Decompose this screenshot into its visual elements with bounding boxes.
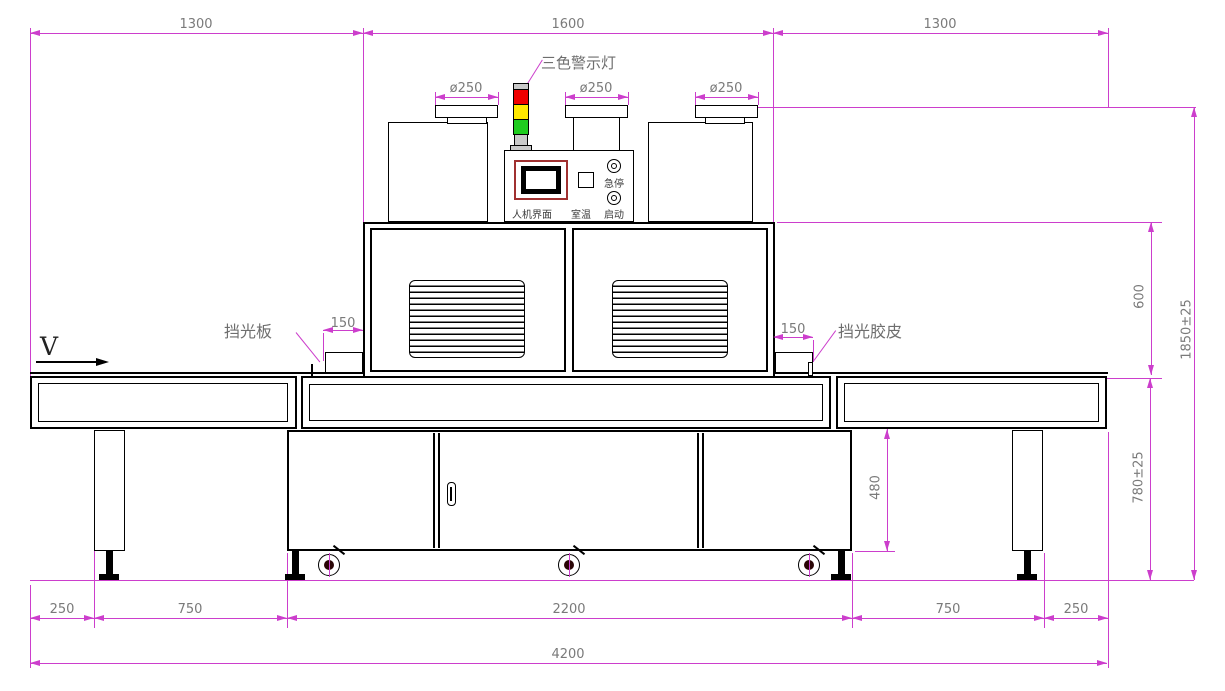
ref-line-top bbox=[758, 107, 1196, 108]
dim-arrowhead bbox=[763, 30, 773, 36]
dim-text-1300-right: 1300 bbox=[915, 17, 965, 32]
caster-centerline bbox=[569, 553, 570, 577]
dim-arrowhead bbox=[618, 94, 628, 100]
cabinet-divider bbox=[433, 433, 435, 548]
dim-text-1600: 1600 bbox=[543, 17, 593, 32]
dim-text-750-l: 750 bbox=[165, 602, 215, 617]
dim-arrowhead bbox=[565, 94, 575, 100]
foot-plate bbox=[1017, 574, 1037, 580]
dim-arrowhead bbox=[1098, 615, 1108, 621]
ext-line bbox=[30, 585, 31, 668]
dim-text-600: 600 bbox=[1133, 267, 1148, 327]
dim-text-duct-left: ø250 bbox=[441, 81, 491, 96]
dim-text-480: 480 bbox=[869, 458, 884, 518]
cabinet-door-handle-grip bbox=[450, 487, 452, 501]
light-block-rubber-strip bbox=[808, 362, 813, 376]
light-block-rubber-label: 挡光胶皮 bbox=[838, 318, 902, 342]
ext-line bbox=[363, 28, 364, 222]
dim-text-4200: 4200 bbox=[543, 647, 593, 662]
dim-text-250-l: 250 bbox=[37, 602, 87, 617]
foot-stem bbox=[106, 551, 113, 575]
warning-light-stem bbox=[514, 134, 528, 146]
dim-arrowhead bbox=[323, 327, 333, 333]
dim-arrowhead bbox=[363, 30, 373, 36]
ext-line bbox=[758, 92, 759, 105]
dim-arrowhead bbox=[30, 30, 40, 36]
ext-line bbox=[773, 28, 774, 222]
dim-arrowhead bbox=[1148, 222, 1154, 232]
hmi-screen[interactable] bbox=[521, 166, 561, 194]
leader-block-plate bbox=[296, 332, 321, 362]
dim-arrowhead bbox=[287, 615, 297, 621]
duct-neck-middle bbox=[573, 118, 620, 150]
dim-arrowhead bbox=[84, 615, 94, 621]
dim-arrowhead bbox=[1098, 30, 1108, 36]
dim-arrowhead bbox=[1148, 365, 1154, 375]
dim-arrowhead bbox=[435, 94, 445, 100]
leg-left bbox=[94, 430, 125, 551]
cabinet-divider bbox=[702, 433, 704, 548]
ext-line bbox=[498, 92, 499, 105]
fan-box-left bbox=[435, 105, 498, 118]
direction-mark: V bbox=[40, 332, 58, 361]
dim-line-4200 bbox=[30, 663, 1107, 664]
ext-line bbox=[323, 333, 324, 361]
dim-arrowhead bbox=[353, 327, 363, 333]
estop-label: 急停 bbox=[604, 175, 624, 190]
cabinet-divider bbox=[438, 433, 440, 548]
fan-box-middle bbox=[565, 105, 628, 118]
dim-line-top bbox=[30, 33, 1108, 34]
dim-arrowhead bbox=[1191, 570, 1197, 580]
dim-text-250-r: 250 bbox=[1051, 602, 1101, 617]
dim-arrowhead bbox=[852, 615, 862, 621]
table-middle-inner bbox=[309, 384, 823, 421]
foot-plate bbox=[285, 574, 305, 580]
dim-arrowhead bbox=[1147, 378, 1153, 388]
dim-arrowhead bbox=[1147, 570, 1153, 580]
dim-arrowhead bbox=[94, 615, 104, 621]
fan-box-right bbox=[695, 105, 758, 118]
foot-stem bbox=[838, 551, 845, 575]
estop-button-core bbox=[611, 163, 617, 169]
dim-arrowhead bbox=[353, 30, 363, 36]
foot-plate bbox=[99, 574, 119, 580]
direction-arrow-head bbox=[96, 358, 109, 366]
table-right-inner bbox=[844, 383, 1099, 422]
dim-arrowhead bbox=[488, 94, 498, 100]
foot-stem bbox=[292, 551, 299, 575]
dim-text-duct-right: ø250 bbox=[701, 81, 751, 96]
dim-text-750-r: 750 bbox=[923, 602, 973, 617]
foot-plate bbox=[831, 574, 851, 580]
direction-arrow-line bbox=[36, 361, 98, 363]
room-temp-display bbox=[578, 172, 594, 188]
engineering-drawing-uv-machine: 1300 1600 1300 ø250 ø250 ø250 150 150 60… bbox=[0, 0, 1225, 691]
floor-line bbox=[30, 580, 1194, 581]
cabinet bbox=[287, 430, 852, 551]
dim-text-1300-left: 1300 bbox=[171, 17, 221, 32]
top-unit-left bbox=[388, 122, 488, 222]
dim-arrowhead bbox=[842, 615, 852, 621]
ref-line-cabbottom bbox=[855, 551, 895, 552]
dim-arrowhead bbox=[277, 615, 287, 621]
foot-stem bbox=[1024, 551, 1031, 575]
ext-line bbox=[1108, 432, 1109, 668]
dim-line-780 bbox=[1150, 378, 1151, 580]
start-label: 启动 bbox=[604, 206, 624, 221]
table-left-inner bbox=[38, 383, 288, 422]
hmi-label: 人机界面 bbox=[512, 206, 552, 221]
dim-arrowhead bbox=[1044, 615, 1054, 621]
caster-centerline bbox=[329, 553, 330, 577]
warning-light-yellow bbox=[513, 104, 529, 120]
ext-line bbox=[628, 92, 629, 105]
caster-centerline bbox=[809, 553, 810, 577]
vent-louver-left bbox=[409, 280, 525, 358]
shelf-left bbox=[325, 352, 363, 373]
start-button-core bbox=[611, 195, 617, 201]
ext-line bbox=[30, 28, 31, 376]
dim-arrowhead bbox=[884, 429, 890, 439]
cabinet-divider bbox=[697, 433, 699, 548]
room-temp-label: 室温 bbox=[571, 206, 591, 221]
light-block-plate-label: 挡光板 bbox=[224, 318, 272, 342]
dim-arrowhead bbox=[773, 334, 783, 340]
dim-arrowhead bbox=[1191, 107, 1197, 117]
dim-arrowhead bbox=[748, 94, 758, 100]
dim-arrowhead bbox=[30, 615, 40, 621]
dim-arrowhead bbox=[1097, 660, 1107, 666]
dim-text-780: 780±25 bbox=[1132, 438, 1147, 518]
ref-line-bodytop bbox=[777, 222, 1162, 223]
dim-arrowhead bbox=[30, 660, 40, 666]
dim-text-2200: 2200 bbox=[544, 602, 594, 617]
dim-arrowhead bbox=[1034, 615, 1044, 621]
dim-line-bottom bbox=[30, 618, 1108, 619]
light-block-plate-bracket bbox=[311, 364, 323, 378]
dim-text-1850: 1850±25 bbox=[1180, 290, 1195, 370]
leader-block-rubber bbox=[814, 330, 837, 361]
dim-arrowhead bbox=[803, 334, 813, 340]
leg-right bbox=[1012, 430, 1043, 551]
dim-line-600 bbox=[1151, 222, 1152, 375]
dim-arrowhead bbox=[884, 541, 890, 551]
vent-louver-right bbox=[612, 280, 728, 358]
warning-light-green bbox=[513, 119, 529, 135]
dim-arrowhead bbox=[773, 30, 783, 36]
warning-light-red bbox=[513, 89, 529, 105]
top-unit-right bbox=[648, 122, 753, 222]
warning-light-label: 三色警示灯 bbox=[541, 52, 616, 73]
dim-line-480 bbox=[887, 429, 888, 551]
dim-arrowhead bbox=[695, 94, 705, 100]
ext-line bbox=[1108, 28, 1109, 107]
dim-text-duct-mid: ø250 bbox=[571, 81, 621, 96]
